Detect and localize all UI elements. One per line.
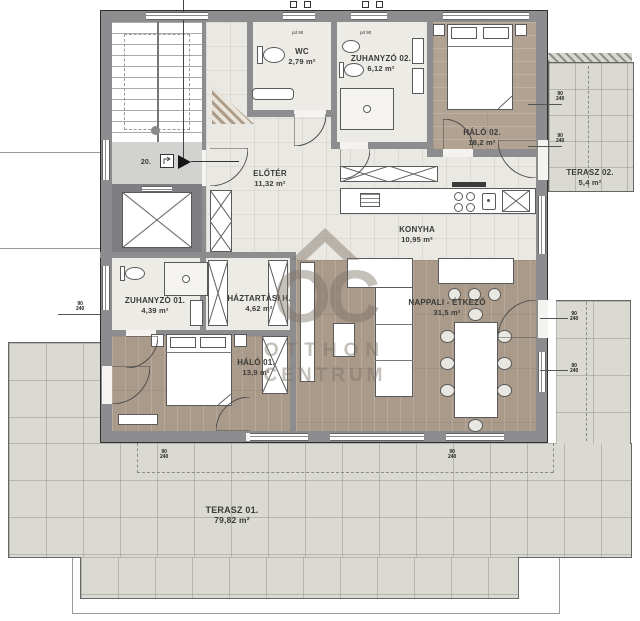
dimension-tick xyxy=(376,1,383,8)
dim-leader xyxy=(528,104,562,105)
window xyxy=(538,352,546,392)
living-room-floor xyxy=(296,260,536,431)
blanket-fold xyxy=(498,96,512,109)
stair-dashed-outline xyxy=(124,34,190,130)
floor-plan: 20. pd 90 pd 90 90240 90240 90240 90240 … xyxy=(0,0,640,621)
window xyxy=(283,12,315,20)
dim-leader xyxy=(540,318,568,319)
terrace-01-bottom xyxy=(8,443,632,558)
dim-label: 90240 xyxy=(570,364,578,374)
stair-newel xyxy=(151,126,160,135)
dining-chair xyxy=(440,330,455,343)
dining-chair xyxy=(497,357,512,370)
toilet xyxy=(263,47,285,63)
room-label-halo02: HÁLÓ 02.18,2 m² xyxy=(463,128,501,147)
door-size-label: pd 90 xyxy=(360,30,371,35)
terrace-01-bump xyxy=(80,557,519,599)
washbasin xyxy=(342,40,360,53)
wall xyxy=(427,22,433,149)
dining-chair xyxy=(468,419,483,432)
dimension-tick xyxy=(290,1,297,8)
elevator-door xyxy=(142,186,172,192)
wall xyxy=(290,252,296,431)
terrace-02-railing xyxy=(548,53,632,62)
window xyxy=(330,433,424,441)
pillow xyxy=(170,337,196,348)
sofa-cushion-line xyxy=(375,360,413,361)
sink-drain xyxy=(487,199,490,202)
room-label-konyha: KONYHA10,95 m² xyxy=(399,225,435,244)
window xyxy=(351,12,387,20)
entry-direction-icon xyxy=(178,155,191,169)
pillow xyxy=(483,27,509,39)
window xyxy=(250,433,308,441)
stove-burner xyxy=(466,203,475,212)
dim-leader xyxy=(58,314,102,315)
room-label-zuhanyzo01: ZUHANYZÓ 01.4,39 m² xyxy=(125,296,185,315)
window xyxy=(102,140,110,180)
entry-direction-line xyxy=(191,161,239,162)
sofa-long-arm xyxy=(375,287,413,397)
stove-burner xyxy=(466,192,475,201)
blanket-line xyxy=(166,352,232,353)
entry-arrow-icon xyxy=(162,156,172,166)
wall xyxy=(331,22,337,149)
roof-overhang-dashed xyxy=(137,443,138,473)
dim-label: 90240 xyxy=(570,312,578,322)
dim-label: 90240 xyxy=(448,450,456,460)
wc-door-swing xyxy=(294,114,326,146)
pillow xyxy=(200,337,226,348)
roof-overhang-dashed xyxy=(137,472,553,473)
blanket-line xyxy=(447,46,513,47)
room-label-halo01: HÁLÓ 01.13,9 m² xyxy=(237,358,275,377)
closet-x-icon xyxy=(210,190,232,221)
dining-chair xyxy=(440,357,455,370)
nightstand xyxy=(433,24,445,36)
sofa-top-arm xyxy=(347,258,413,288)
pillow xyxy=(451,27,477,39)
shower01-door-swing xyxy=(126,336,158,368)
roof-overhang-dashed xyxy=(586,302,587,441)
plumb-line xyxy=(183,0,184,158)
dim-label: 90240 xyxy=(160,450,168,460)
dim-label: 90240 xyxy=(556,134,564,144)
stove-burner xyxy=(454,203,463,212)
nightstand xyxy=(515,24,527,36)
door-opening xyxy=(246,433,250,441)
room-label-terasz01: TERASZ 01.79,82 m² xyxy=(205,506,258,525)
sofa-cushion-line xyxy=(375,324,413,325)
door-size-label: pd 90 xyxy=(292,30,303,35)
door-opening xyxy=(202,150,206,186)
dresser xyxy=(118,414,158,425)
elevator-x-icon xyxy=(122,192,192,248)
room-label-haztartasi: HÁZTARTÁSI H.4,62 m² xyxy=(227,294,290,313)
shower-drain xyxy=(363,105,371,113)
window xyxy=(102,266,110,310)
window xyxy=(538,196,546,254)
room-label-nappali: NAPPALI - ÉTKEZŐ31,5 m² xyxy=(408,298,485,317)
entry-door-swing xyxy=(210,148,248,186)
window xyxy=(446,433,504,441)
dim-leader xyxy=(540,370,568,371)
roof-overhang-dashed xyxy=(553,443,554,473)
dimension-tick xyxy=(362,1,369,8)
landing-number: 20. xyxy=(141,158,151,167)
wall xyxy=(100,252,296,258)
site-line xyxy=(0,248,100,249)
site-line xyxy=(0,152,100,153)
bedroom01-terrace-door-swing xyxy=(112,366,150,404)
appliance-x-icon xyxy=(502,190,530,212)
cabinet-x-icon xyxy=(208,260,228,326)
window xyxy=(146,12,208,20)
room-label-wc: WC2,79 m² xyxy=(288,47,315,66)
dim-leader xyxy=(528,146,562,147)
window xyxy=(443,12,529,20)
dim-label: 90240 xyxy=(76,302,84,312)
washbasin-counter xyxy=(252,88,294,100)
dining-chair xyxy=(497,384,512,397)
closet-x-icon xyxy=(210,221,232,252)
bedroom01-south-door-swing xyxy=(216,397,250,431)
dimension-tick xyxy=(304,1,311,8)
washbasin xyxy=(190,300,203,326)
dining-chair xyxy=(440,384,455,397)
door-opening xyxy=(443,149,473,157)
room-label-eloter: ELŐTÉR11,32 m² xyxy=(253,169,287,188)
sideboard xyxy=(300,262,315,382)
kitchen-appliance xyxy=(360,193,380,207)
room-label-terasz02: TERASZ 02.5,4 m² xyxy=(566,168,613,187)
living-terrace-door-swing xyxy=(498,300,536,338)
wall xyxy=(247,22,253,117)
terrace-door-opening xyxy=(538,300,548,338)
wall xyxy=(202,22,206,256)
cooker-hood xyxy=(452,182,486,187)
terrace-01-right-arm xyxy=(556,300,631,444)
door-opening xyxy=(340,142,368,149)
toilet xyxy=(125,267,145,280)
dim-label: 90240 xyxy=(556,92,564,102)
bath-cabinet xyxy=(412,38,424,64)
terrace-door-opening xyxy=(102,366,112,404)
cabinet-x-icon xyxy=(389,166,438,182)
nightstand xyxy=(234,334,247,347)
shower02-door-swing xyxy=(340,149,370,179)
stove-burner xyxy=(454,192,463,201)
cabinet-x-icon xyxy=(268,260,288,326)
dining-table xyxy=(454,322,498,418)
room-label-zuhanyzo02: ZUHANYZÓ 02.6,12 m² xyxy=(351,54,411,73)
shower-drain xyxy=(182,275,190,283)
bath-cabinet xyxy=(412,68,424,94)
coffee-table xyxy=(333,323,355,357)
kitchen-island xyxy=(438,258,514,284)
